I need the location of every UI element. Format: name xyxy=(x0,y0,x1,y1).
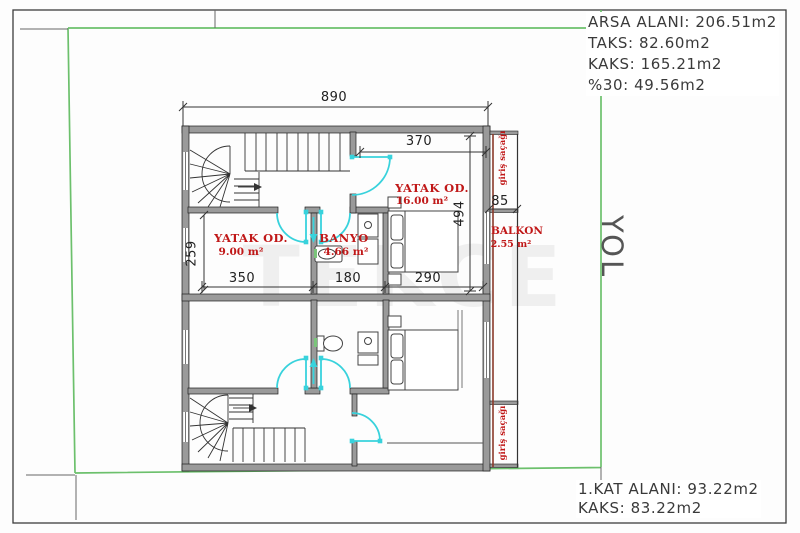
dim-right-width: 290 xyxy=(404,271,452,286)
dim-bath-width: 180 xyxy=(324,271,372,286)
room-label-bathroom: BANYO xyxy=(312,231,376,245)
room-label-bedroom-left: YATAK OD. xyxy=(208,231,294,245)
floor-plan-page: TEKCE xyxy=(0,0,800,533)
floor-info-kaks: KAKS: 83.22m2 xyxy=(576,499,761,518)
site-info-arsa-alani: ARSA ALANI: 206.51m2 xyxy=(586,12,779,33)
room-area-bathroom: 4.66 m² xyxy=(314,246,378,258)
room-label-balcony: BALKON xyxy=(488,225,546,237)
staircase-lower xyxy=(190,394,305,462)
dim-right-room-width: 370 xyxy=(395,134,443,149)
floor-info-kat-alani: 1.KAT ALANI: 93.22m2 xyxy=(576,480,761,499)
road-label: YOL xyxy=(595,215,629,275)
room-area-balcony: 2.55 m² xyxy=(487,239,535,250)
site-info-block: ARSA ALANI: 206.51m2 TAKS: 82.60m2 KAKS:… xyxy=(586,12,779,96)
site-info-taks: TAKS: 82.60m2 xyxy=(586,33,779,54)
dim-right-room-height: 494 xyxy=(453,190,468,238)
room-area-bedroom-left: 9.00 m² xyxy=(210,246,272,258)
dim-left-room-width: 350 xyxy=(218,271,266,286)
parcel-boundary xyxy=(20,10,601,520)
staircase-upper xyxy=(190,133,350,207)
room-area-bedroom-right: 16.00 m² xyxy=(391,195,453,207)
site-info-pct30: %30: 49.56m2 xyxy=(586,75,779,96)
dim-total-width: 890 xyxy=(310,90,358,105)
label-entry-canopy-bottom: giriş saçağı xyxy=(498,402,508,464)
floor-info-block: 1.KAT ALANI: 93.22m2 KAKS: 83.22m2 xyxy=(576,480,761,518)
dim-balcony-width: 85 xyxy=(485,194,515,209)
room-label-bedroom-right: YATAK OD. xyxy=(389,181,475,195)
site-info-kaks: KAKS: 165.21m2 xyxy=(586,54,779,75)
dim-left-room-height: 259 xyxy=(185,230,200,278)
label-entry-canopy-top: giriş saçağı xyxy=(498,127,508,189)
